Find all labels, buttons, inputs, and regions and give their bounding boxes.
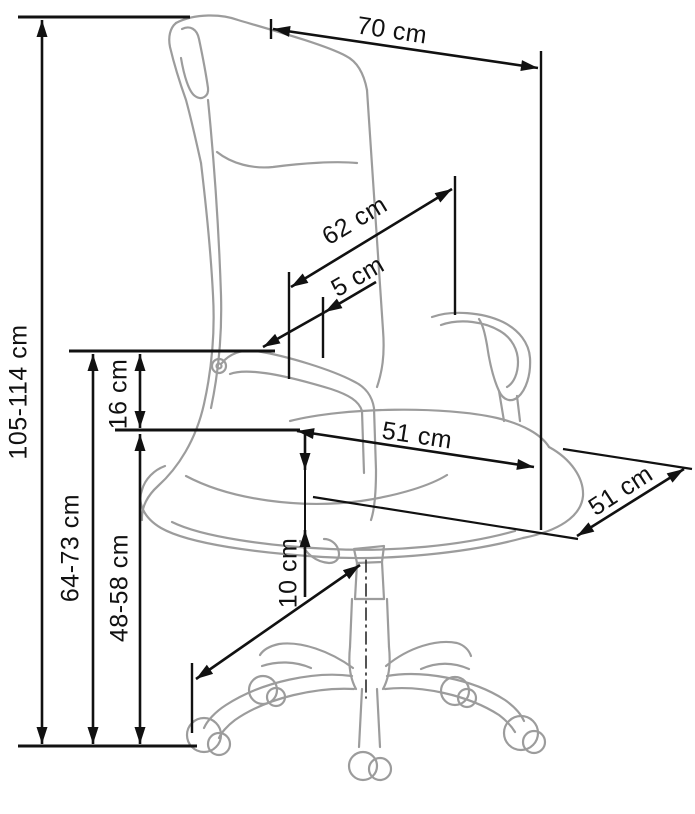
arrowhead	[667, 469, 684, 483]
arrowhead	[520, 60, 538, 71]
dim-label-seat-to-armrest: 16 cm	[105, 359, 134, 430]
arrowhead	[291, 273, 308, 287]
arrowhead	[435, 189, 452, 203]
arrowhead	[343, 565, 360, 579]
chair-dimension-diagram: 105-114 cm 64-73 cm 16 cm 48-58 cm 10 cm…	[0, 0, 695, 814]
arrowhead	[135, 354, 146, 371]
arrowhead	[577, 522, 594, 536]
dim-label-seat-height: 48-58 cm	[106, 534, 135, 642]
arrowhead	[263, 334, 281, 347]
arrowhead	[300, 453, 311, 470]
arrowhead	[196, 665, 213, 679]
arrowhead	[135, 411, 146, 428]
arrowhead	[88, 727, 99, 744]
arrowhead	[88, 354, 99, 371]
dimension-line	[313, 497, 578, 539]
arrowhead	[273, 26, 291, 37]
arrowhead	[516, 459, 534, 470]
dim-label-armrest-height: 64-73 cm	[57, 494, 86, 602]
arrowhead	[37, 20, 48, 37]
dimension-line	[563, 449, 692, 469]
arrowhead	[135, 434, 146, 451]
dim-label-height-adjustment: 10 cm	[275, 538, 304, 609]
dim-label-overall-height: 105-114 cm	[5, 324, 34, 459]
arrowhead	[135, 727, 146, 744]
arrowhead	[37, 727, 48, 744]
